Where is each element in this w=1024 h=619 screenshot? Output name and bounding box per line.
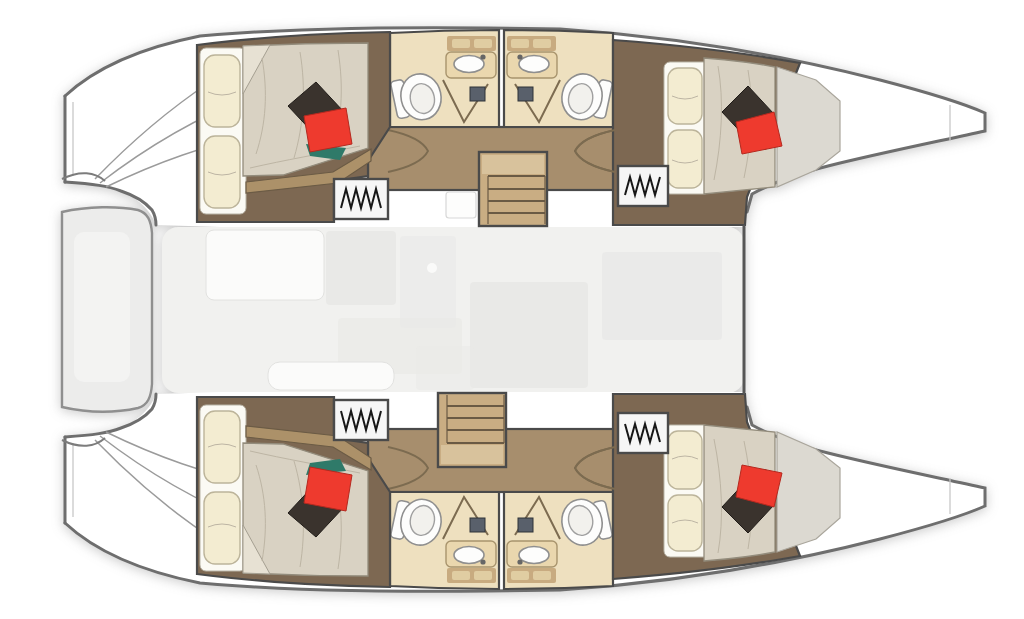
lower-hull (62, 392, 985, 591)
saloon-unit (416, 346, 474, 390)
galley-counter (400, 236, 456, 328)
saloon-table (470, 282, 588, 388)
nav-station (602, 252, 722, 340)
galley-block (326, 231, 396, 305)
staircase-lower (438, 393, 506, 467)
floor-plan-canvas (0, 0, 1024, 619)
cockpit-bench (62, 207, 152, 411)
saloon-seat (206, 230, 324, 300)
saloon (162, 227, 744, 393)
staircase-upper (479, 152, 547, 226)
catamaran-floor-plan (0, 0, 1024, 619)
saloon-detail (427, 263, 437, 273)
sofa-cushions (268, 362, 394, 390)
